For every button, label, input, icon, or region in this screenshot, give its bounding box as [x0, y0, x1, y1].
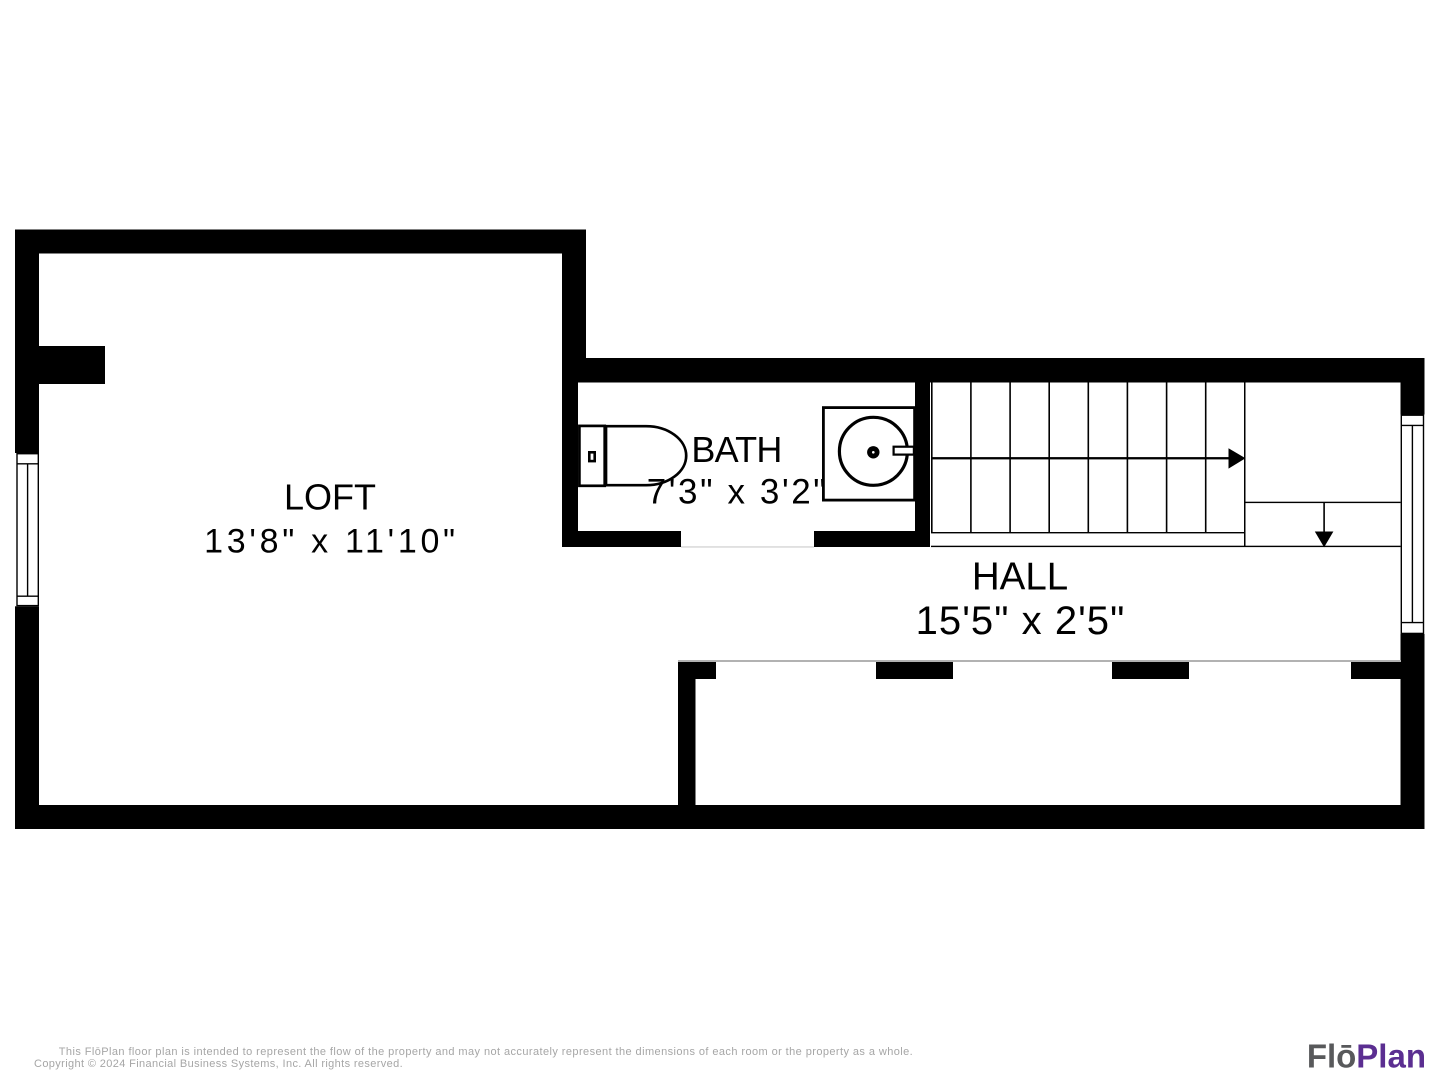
svg-text:HALL: HALL	[972, 556, 1068, 599]
svg-text:Copyright © 2024 Financial Bus: Copyright © 2024 Financial Business Syst…	[34, 1058, 403, 1070]
svg-text:FlōPlan: FlōPlan	[1307, 1037, 1426, 1074]
svg-text:BATH: BATH	[691, 429, 781, 470]
svg-text:15'5" x 2'5": 15'5" x 2'5"	[916, 599, 1126, 643]
svg-text:This FlōPlan floor plan is int: This FlōPlan floor plan is intended to r…	[59, 1046, 913, 1058]
svg-text:7'3" x 3'2": 7'3" x 3'2"	[647, 472, 829, 511]
svg-text:LOFT: LOFT	[284, 477, 376, 518]
svg-text:13'8" x 11'10": 13'8" x 11'10"	[204, 522, 459, 560]
